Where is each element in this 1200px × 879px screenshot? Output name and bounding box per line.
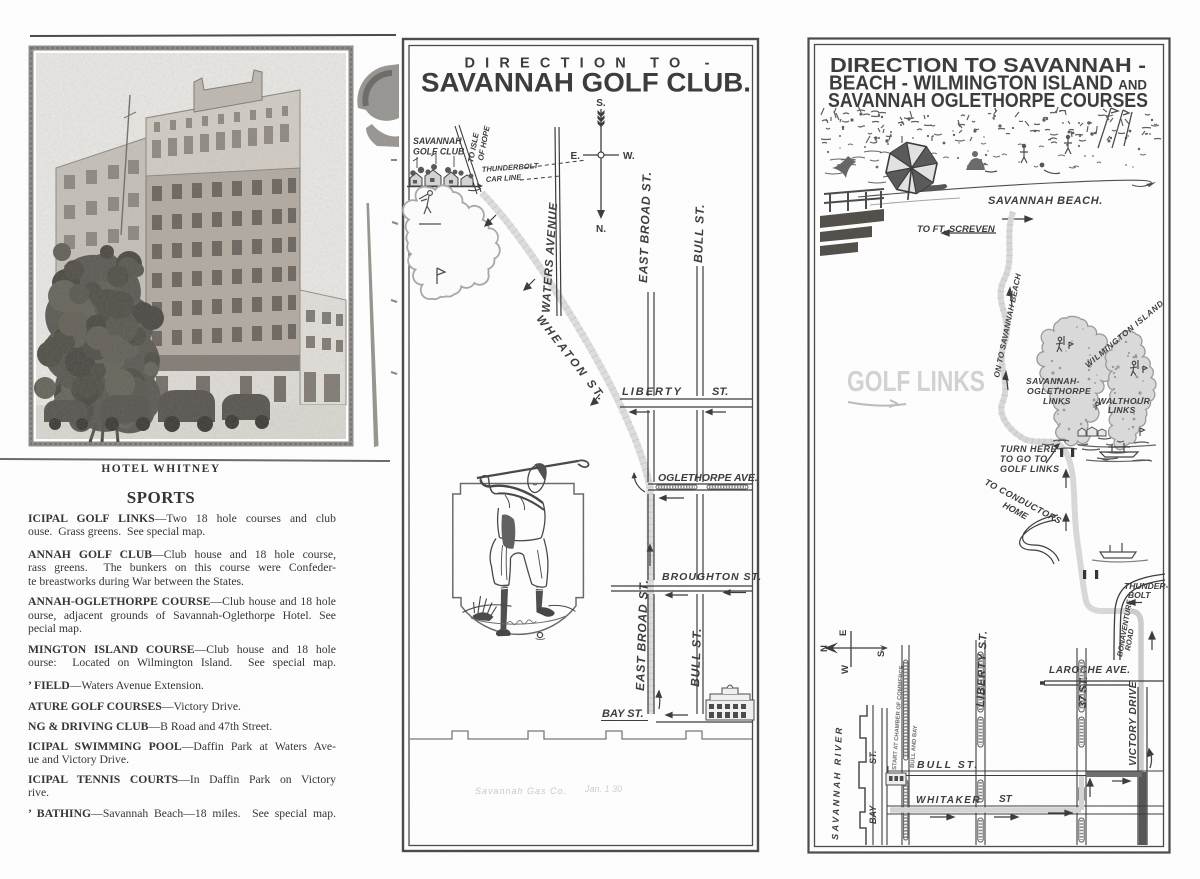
svg-text:S.: S. [596, 98, 606, 109]
svg-text:Savannah Gas Co.: Savannah Gas Co. [475, 786, 567, 796]
svg-text:W.: W. [623, 151, 635, 162]
svg-text:BAY: BAY [868, 805, 878, 824]
svg-text:CAR LINE: CAR LINE [486, 172, 523, 184]
svg-text:BROUGHTON ST.: BROUGHTON ST. [662, 571, 762, 583]
svg-text:S: S [876, 651, 887, 657]
svg-text:LAROCHE AVE.: LAROCHE AVE. [1049, 665, 1131, 676]
svg-text:LIBERTY: LIBERTY [622, 386, 683, 398]
svg-text:LIBERTY ST.: LIBERTY ST. [975, 630, 990, 707]
svg-text:ST.: ST. [868, 751, 878, 764]
svg-text:LINKS: LINKS [1108, 405, 1136, 415]
svg-text:LINKS: LINKS [1043, 396, 1071, 406]
svg-text:GOLF CLUB: GOLF CLUB [413, 147, 465, 157]
svg-text:Jan. 1 30: Jan. 1 30 [584, 784, 622, 794]
svg-text:W: W [840, 665, 851, 674]
svg-text:SAVANNAH RIVER: SAVANNAH RIVER [830, 725, 844, 840]
svg-text:TO GO TO: TO GO TO [1000, 454, 1048, 464]
svg-text:BAY ST.: BAY ST. [602, 708, 644, 720]
svg-text:E.: E. [571, 151, 581, 162]
svg-text:VICTORY DRIVE: VICTORY DRIVE [1128, 681, 1139, 766]
svg-text:E: E [838, 630, 849, 636]
svg-text:WHITAKER: WHITAKER [916, 795, 981, 806]
svg-text:N.: N. [596, 224, 606, 235]
svg-text:BULL ST.: BULL ST. [688, 627, 704, 687]
svg-text:SAVANNAH BEACH.: SAVANNAH BEACH. [988, 195, 1103, 207]
svg-text:SAVANNAH OGLETHORPE COURSES: SAVANNAH OGLETHORPE COURSES [828, 90, 1148, 112]
svg-text:EAST BROAD ST.: EAST BROAD ST. [636, 171, 654, 283]
svg-text:37 ST.: 37 ST. [1077, 676, 1090, 708]
svg-text:ST.: ST. [712, 386, 728, 398]
svg-text:OF HOPE: OF HOPE [476, 124, 492, 161]
svg-text:TURN HERE: TURN HERE [1000, 444, 1057, 454]
svg-text:GOLF LINKS: GOLF LINKS [847, 366, 985, 398]
svg-text:ST: ST [999, 794, 1013, 805]
svg-text:SAVANNAH: SAVANNAH [413, 136, 462, 146]
svg-text:OGLETHORPE: OGLETHORPE [1027, 386, 1091, 396]
svg-text:SAVANNAH GOLF CLUB.: SAVANNAH GOLF CLUB. [421, 68, 751, 98]
svg-text:SAVANNAH-: SAVANNAH- [1026, 376, 1080, 386]
svg-text:N: N [819, 645, 830, 652]
svg-text:ON TO SAVANNAH BEACH: ON TO SAVANNAH BEACH [992, 273, 1023, 379]
svg-text:OGLETHORPE AVE.: OGLETHORPE AVE. [658, 472, 758, 484]
svg-text:BULL ST.: BULL ST. [691, 203, 707, 263]
svg-text:BULL ST.: BULL ST. [917, 759, 979, 771]
svg-text:GOLF LINKS: GOLF LINKS [1000, 464, 1060, 474]
